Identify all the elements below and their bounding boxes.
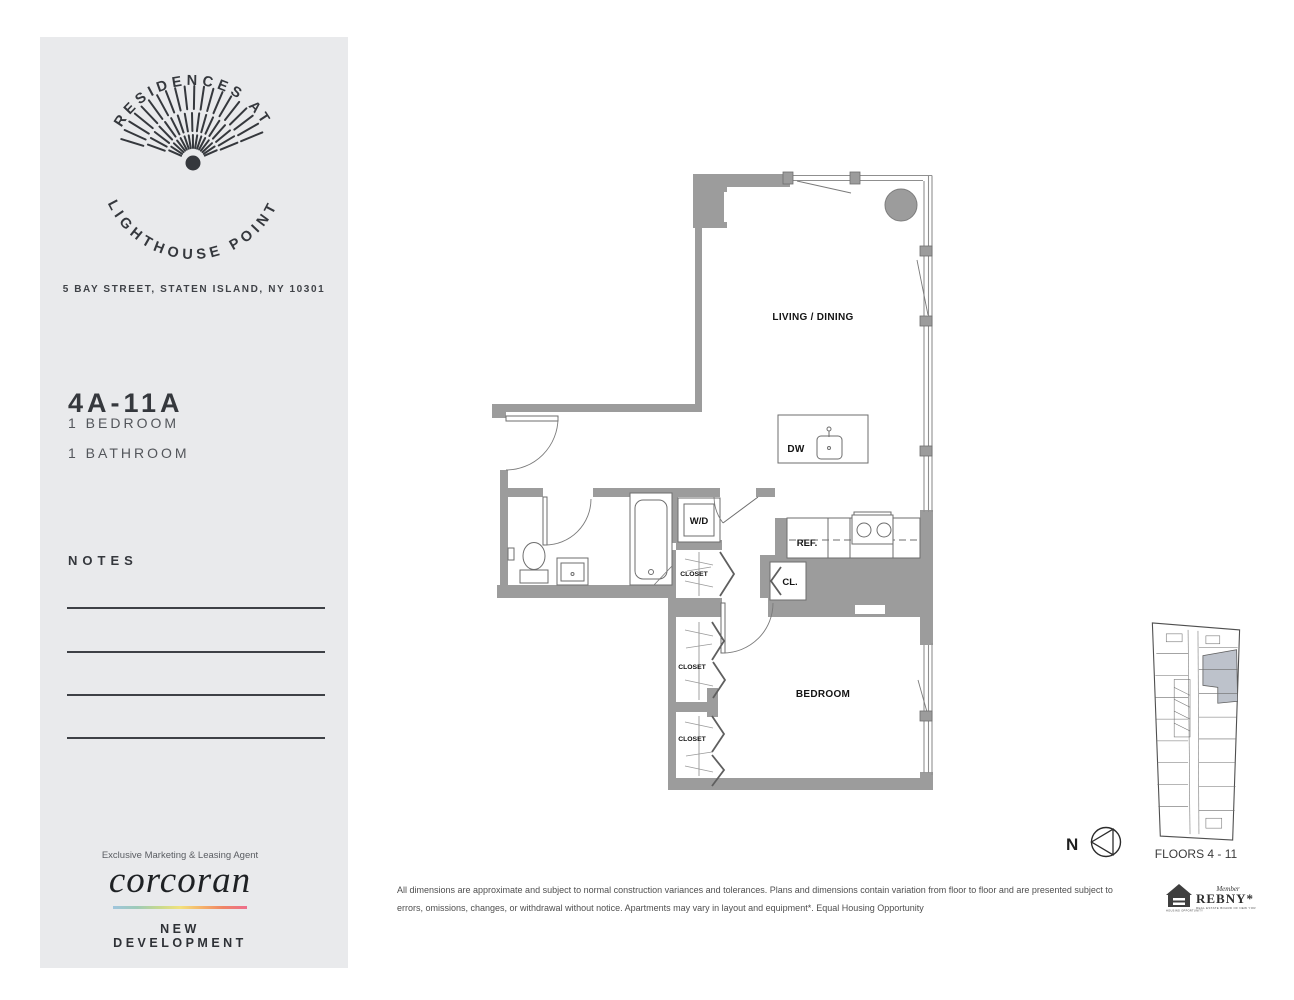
floor-plan: DW REF.: [480, 160, 950, 810]
disclaimer-line-1: All dimensions are approximate and subje…: [397, 881, 1172, 899]
vanity-sink: [557, 558, 588, 585]
disclaimer: All dimensions are approximate and subje…: [397, 881, 1172, 917]
island-sink: [817, 436, 842, 459]
lighthouse-point-logo: RESIDENCES AT LIGHTHOUSE POINT: [92, 53, 294, 271]
building-address: 5 BAY STREET, STATEN ISLAND, NY 10301: [40, 284, 348, 295]
unit-bathrooms: 1 BATHROOM: [68, 445, 190, 461]
floorplan-sheet: RESIDENCES AT LIGHTHOUSE POINT 5 BAY STR…: [0, 0, 1294, 1000]
rebny-logo: EQUAL HOUSING OPPORTUNITY Member REBNY* …: [1166, 882, 1256, 918]
bathroom: [508, 493, 672, 585]
disclaimer-line-2: errors, omissions, changes, or withdrawa…: [397, 899, 1172, 917]
notes-line: [67, 607, 325, 609]
cl-label: CL.: [782, 577, 797, 588]
notes-line: [67, 694, 325, 696]
lighthouse-dot-icon: [186, 156, 201, 171]
washer-dryer: W/D: [678, 498, 720, 542]
corcoran-logo: corcoran: [95, 862, 265, 901]
bathroom-door: [543, 497, 591, 545]
window-casement-line: [797, 181, 851, 193]
closet-3: CLOSET: [678, 716, 724, 786]
keyplan-caption: FLOORS 4 - 11: [1150, 847, 1242, 861]
notes-line: [67, 737, 325, 739]
north-label: N: [1066, 835, 1078, 854]
kitchen-counter: REF.: [787, 512, 920, 558]
rebny-name: REBNY*: [1196, 891, 1254, 906]
living-dining-label: LIVING / DINING: [772, 312, 853, 323]
closet-label: CLOSET: [678, 664, 706, 671]
corcoran-gradient-bar: [113, 906, 247, 909]
bedroom-label: BEDROOM: [796, 689, 850, 700]
bathtub: [630, 493, 672, 585]
north-arrow: N: [1062, 820, 1132, 864]
agent-division: NEW DEVELOPMENT: [95, 922, 265, 950]
notes-line: [67, 651, 325, 653]
range-stove: [852, 512, 893, 544]
window-casement-line: [918, 680, 927, 712]
sidebar: RESIDENCES AT LIGHTHOUSE POINT 5 BAY STR…: [40, 37, 348, 968]
toilet: [508, 543, 548, 584]
agent-block: Exclusive Marketing & Leasing Agent corc…: [95, 850, 265, 950]
windows: [783, 172, 932, 775]
rebny-tagline: REAL ESTATE BOARD OF NEW YORK: [1196, 906, 1256, 910]
kitchen-island: DW: [778, 415, 868, 463]
hall-door: [714, 497, 758, 523]
entry-door: [506, 416, 558, 470]
closet-1: CLOSET: [680, 552, 734, 596]
wd-label: W/D: [690, 516, 709, 527]
dw-label: DW: [787, 444, 805, 455]
ref-label: REF.: [797, 538, 818, 549]
notes-label: NOTES: [68, 553, 138, 568]
unit-bedrooms: 1 BEDROOM: [68, 415, 179, 431]
closet-label: CLOSET: [678, 736, 706, 743]
logo-arc-bottom: LIGHTHOUSE POINT: [104, 198, 282, 264]
closet-label: CLOSET: [680, 571, 708, 578]
key-plan: [1146, 618, 1242, 844]
window-casement-line: [917, 260, 928, 315]
structural-column: [885, 189, 917, 221]
